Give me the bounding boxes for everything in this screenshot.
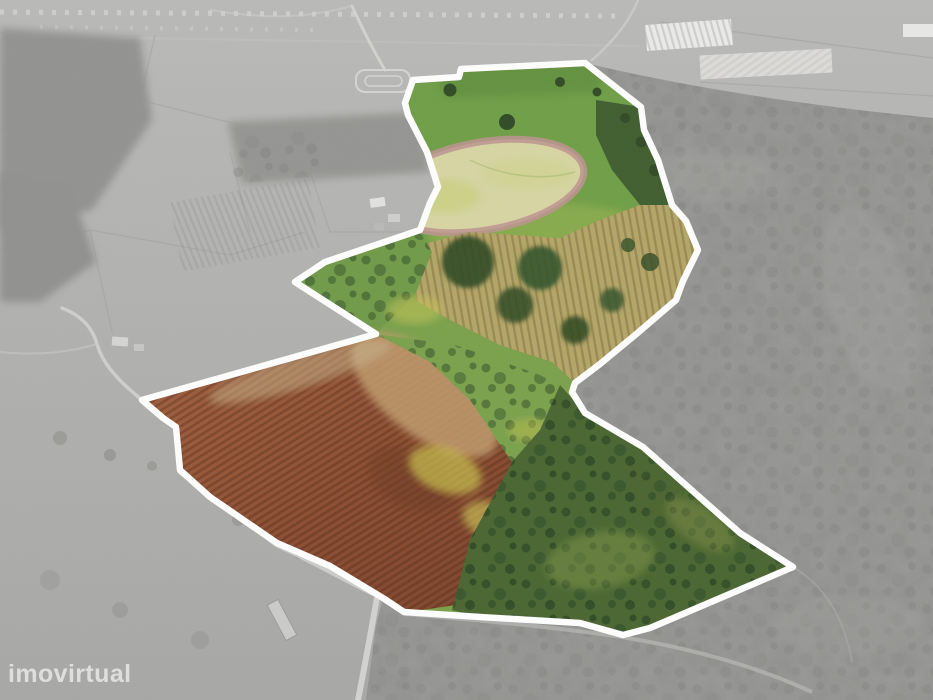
watermark: imovirtual [8,660,208,689]
aerial-scene [0,0,933,700]
aerial-photo: imovirtual [0,0,933,700]
photo-grain [0,0,933,700]
